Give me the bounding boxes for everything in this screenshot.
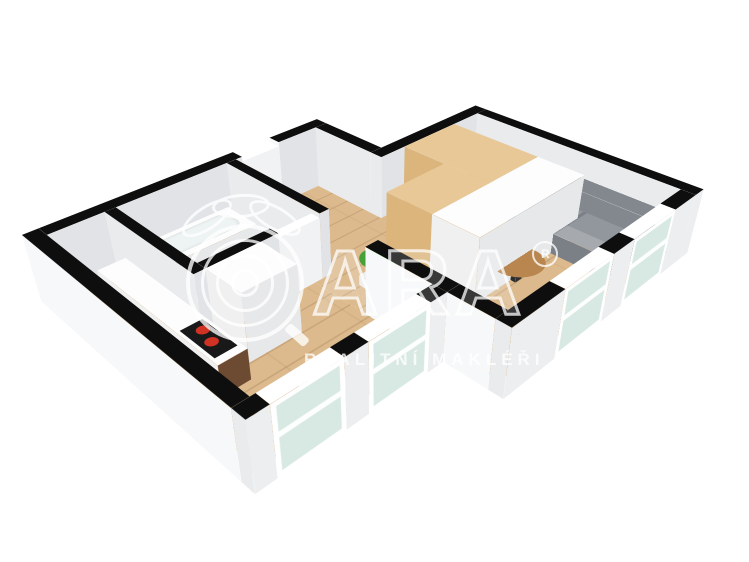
floorplan-render: ARA R REALITNÍ MAKLÉŘI — [0, 0, 749, 562]
wall-e-3 — [488, 350, 554, 399]
wall-se-3 — [242, 467, 278, 495]
apartment-3d-floorplan — [41, 136, 687, 549]
